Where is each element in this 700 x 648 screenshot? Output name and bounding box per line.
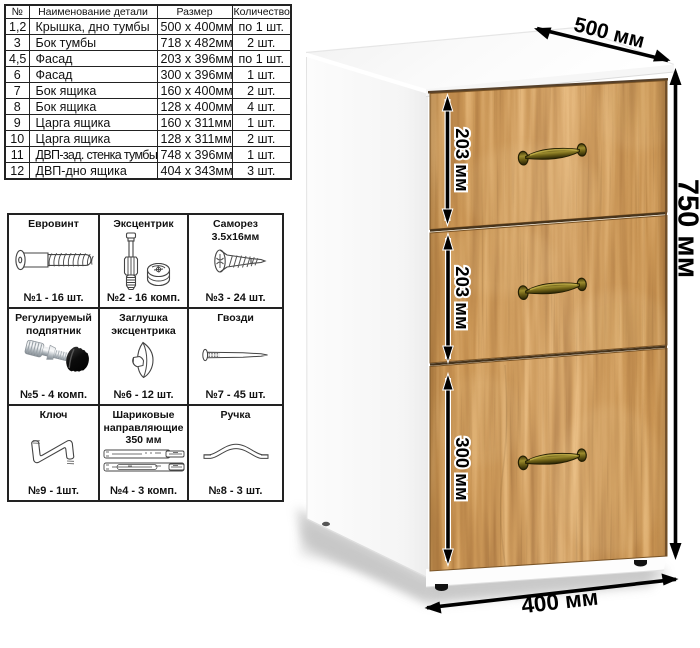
- svg-text:203 мм: 203 мм: [452, 128, 473, 191]
- svg-text:203 мм: 203 мм: [452, 266, 473, 329]
- svg-text:300 мм: 300 мм: [452, 437, 473, 500]
- svg-text:750 мм: 750 мм: [671, 179, 700, 278]
